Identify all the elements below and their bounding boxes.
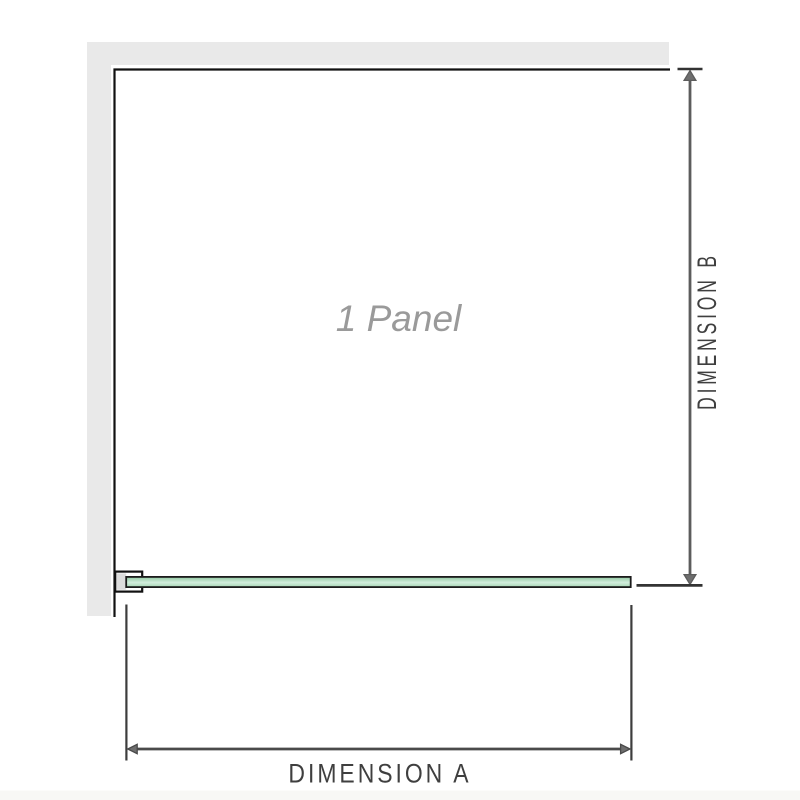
svg-text:DIMENSION B: DIMENSION B bbox=[692, 252, 722, 410]
svg-text:DIMENSION A: DIMENSION A bbox=[288, 759, 471, 789]
svg-text:1 Panel: 1 Panel bbox=[336, 298, 463, 339]
